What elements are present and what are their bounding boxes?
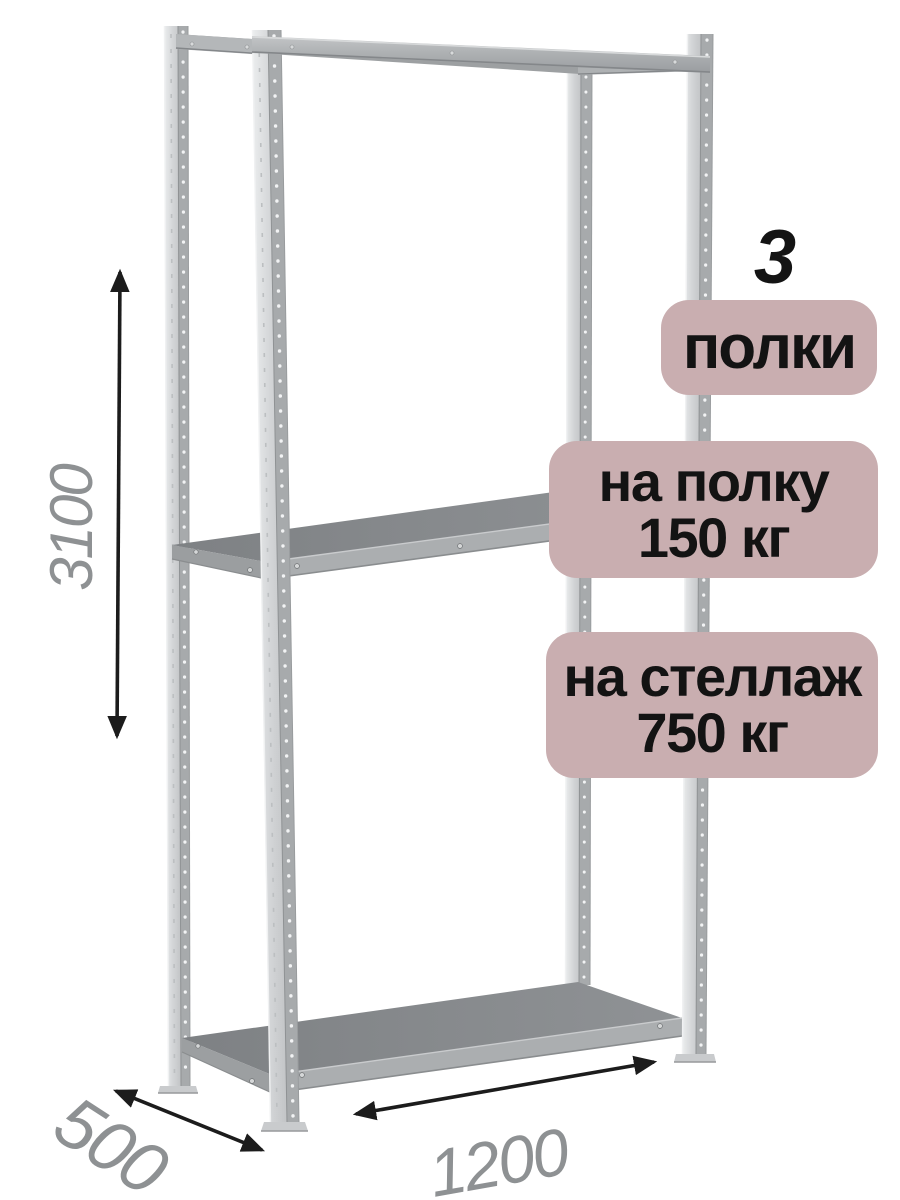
product-image: 3100 500 1200 3 полки на полку 150 кг на…	[0, 0, 900, 1200]
bottom-shelf	[182, 982, 682, 1093]
shelf-count-badge: полки	[661, 300, 877, 395]
per-rack-load-line2: 750 кг	[636, 705, 787, 761]
height-dimension-arrow	[117, 272, 120, 736]
depth-dimension-label: 500	[40, 1081, 181, 1200]
per-shelf-load-line1: на полку	[599, 454, 829, 510]
width-dimension-label: 1200	[423, 1113, 575, 1200]
per-shelf-load-badge: на полку 150 кг	[549, 441, 878, 578]
shelf-count-number: 3	[725, 220, 825, 296]
per-rack-load-line1: на стеллаж	[563, 649, 860, 705]
shelf-count-label: полки	[683, 312, 855, 383]
per-rack-load-badge: на стеллаж 750 кг	[546, 632, 878, 778]
height-dimension-label: 3100	[38, 464, 105, 591]
shelving-rack-illustration: 3100 500 1200	[0, 0, 900, 1200]
per-shelf-load-line2: 150 кг	[638, 510, 789, 566]
